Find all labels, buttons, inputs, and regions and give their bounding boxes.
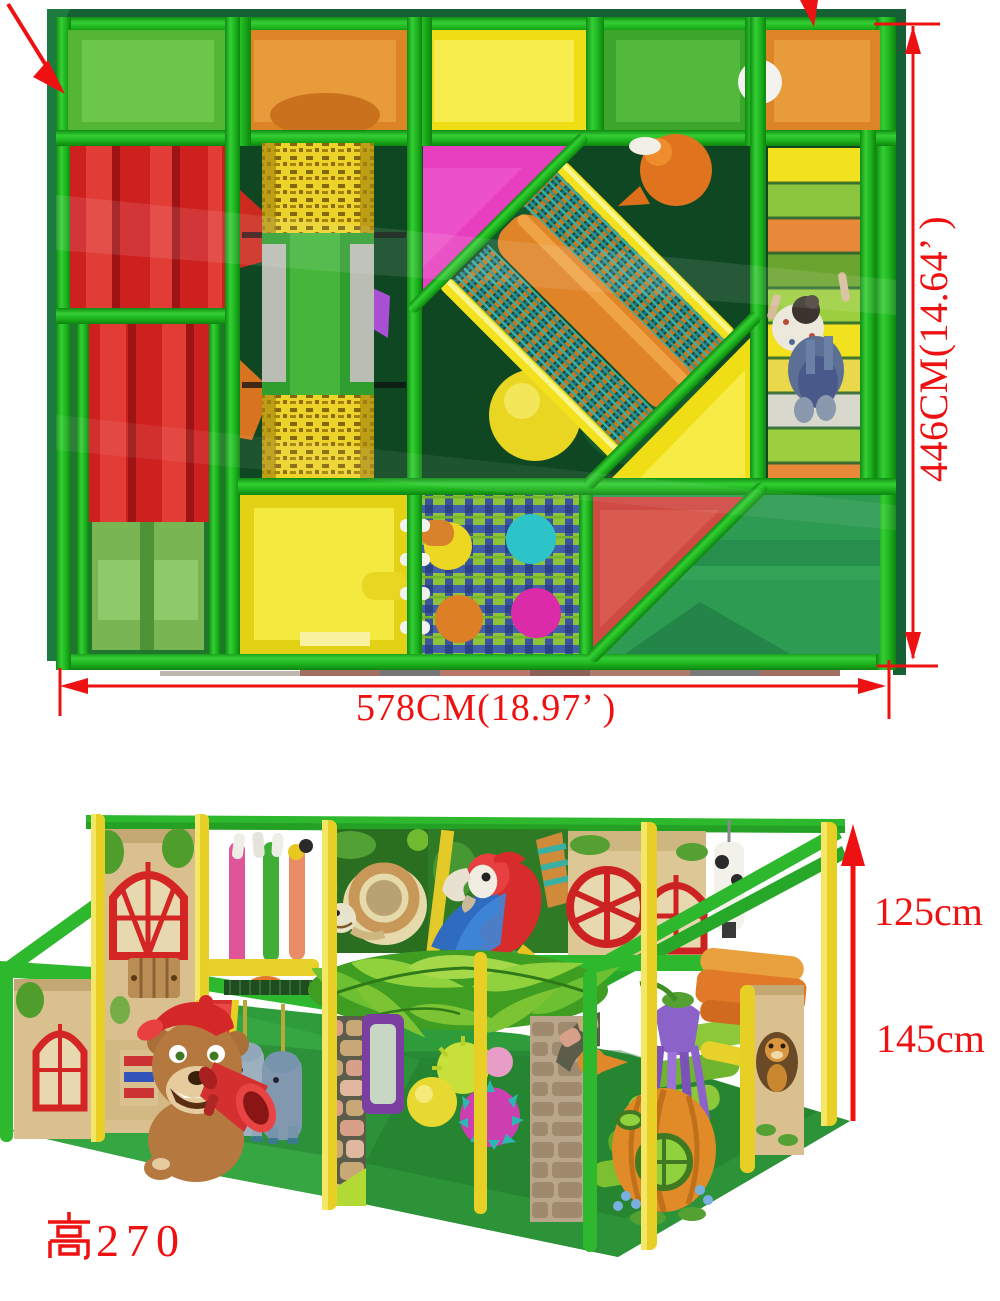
svg-text:578CM(18.97’ ): 578CM(18.97’ )	[356, 687, 616, 729]
svg-text:446CM(14.64’ ): 446CM(14.64’ )	[911, 216, 956, 482]
svg-text:270: 270	[96, 1215, 186, 1266]
svg-text:145cm: 145cm	[876, 1016, 985, 1061]
svg-text:125cm: 125cm	[874, 889, 983, 934]
